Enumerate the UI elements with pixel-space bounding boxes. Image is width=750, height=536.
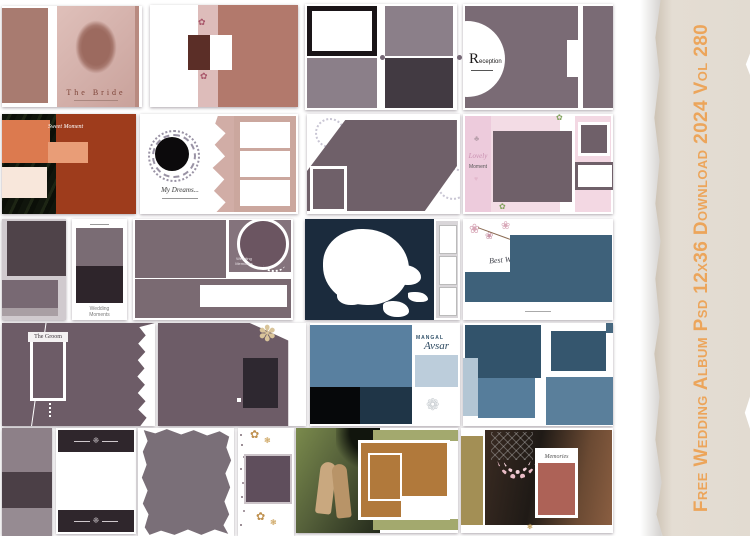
sidebar-title: Free Wedding Album Psd 12x36 Download 20… (691, 24, 713, 512)
photo-slot (240, 151, 290, 177)
photo-block (510, 235, 612, 302)
floral-wreath (68, 11, 124, 83)
template-thumbnail-flourish-card: ❈ ❈ (56, 428, 136, 534)
template-thumbnail-floral-frame: ✿ ✿ (150, 5, 298, 107)
tile-title: The Groom (34, 334, 62, 340)
photo-block (135, 279, 291, 318)
template-thumbnail-hexagon (307, 114, 460, 214)
framed-photo (578, 122, 610, 156)
subtitle-rule (162, 198, 198, 199)
grunge-band (210, 116, 236, 212)
photo-circle (155, 137, 189, 171)
pink-band: ♣ Lovely Moment ♥ (465, 116, 491, 212)
necklace (503, 440, 531, 474)
title-rest: eception (479, 59, 502, 65)
framed-overlay: Memories (535, 448, 578, 518)
white-box (401, 496, 447, 517)
template-thumbnail-grunge-block (138, 428, 234, 536)
floral-sprig-icon: ✿ (198, 17, 206, 28)
color-block (583, 6, 613, 108)
template-thumbnail-moss-photo (296, 428, 458, 533)
color-block (2, 167, 47, 198)
template-thumbnail-wedding-moments: Wedding Moments (72, 219, 127, 320)
tile-title: Wedding Memories (229, 256, 259, 266)
gold-sprig-icon: ✿ (256, 510, 265, 523)
gold-sprig-icon: ✿ (250, 428, 259, 441)
photo-block (135, 220, 226, 278)
photo-block (360, 387, 412, 424)
tile-title: Sweet Moment (48, 124, 83, 130)
top-rule (90, 224, 109, 225)
color-block (2, 428, 52, 472)
photo-box (188, 35, 210, 70)
speckle-edge (240, 434, 242, 436)
dotted-line (49, 403, 51, 405)
tile-title: Reception (469, 50, 502, 68)
color-block (2, 8, 48, 103)
template-thumbnail-gray-panels (2, 219, 66, 320)
photo-block (478, 378, 535, 418)
floral-sprig-icon: ✿ (200, 71, 208, 82)
flourish-icon: ❈ (93, 517, 100, 525)
title-box: The Groom (28, 332, 68, 342)
photo-area (312, 11, 372, 51)
side-strip (436, 221, 458, 318)
photo-slot (439, 256, 457, 285)
sidebar-title-text: Free Wedding Album Psd 12x36 Download 20… (691, 24, 713, 512)
grunge-edge (134, 323, 155, 426)
dot-separator (380, 55, 385, 60)
photo-slot (439, 225, 457, 254)
template-thumbnail-angled-mauve: ✽ (158, 323, 306, 426)
template-thumbnail-the-bride: The Bride (2, 6, 142, 107)
rule (74, 521, 90, 522)
leaf-icon: ✿ (499, 202, 506, 211)
title-box: Memories (538, 451, 575, 463)
leaf-icon: ✿ (556, 114, 563, 122)
circle-panel: Wedding Memories (229, 220, 291, 272)
photo-block (310, 387, 360, 424)
color-block (385, 6, 453, 56)
photo-slot (240, 180, 290, 206)
template-thumbnail-necklace-memories: Memories ❃ (461, 428, 613, 533)
photo-block (310, 325, 412, 387)
color-block (2, 472, 52, 508)
photo-block (551, 331, 606, 371)
ornament-band: ❈ (58, 430, 134, 452)
framed-photo (310, 166, 347, 212)
tile-title-line1: Lovely (465, 152, 491, 160)
template-thumbnail-blue-boxes (463, 323, 613, 426)
edge-strip (135, 6, 139, 107)
ornament-band: ❈ (58, 510, 134, 532)
subtitle-rule (471, 70, 493, 71)
template-thumbnail-wedding-memories: Wedding Memories (133, 219, 293, 320)
color-block (385, 58, 453, 108)
heart-icon: ♥ (474, 176, 478, 183)
color-block (307, 58, 377, 108)
dotted-arc (263, 258, 285, 272)
gold-sprig-icon: ❃ (270, 518, 277, 527)
rule (102, 521, 118, 522)
template-thumbnail-best-wishes: ❀ ❀ ❀ Best Wishes (463, 219, 613, 320)
template-thumbnail-bands (2, 428, 52, 536)
subtitle-rule (74, 100, 118, 101)
dot-separator (457, 55, 462, 60)
template-thumbnail-navy-splatter (305, 219, 460, 320)
photo-block (7, 221, 66, 276)
photo-block (76, 266, 123, 303)
photo-frame (368, 453, 402, 501)
color-block (415, 355, 458, 387)
paint-splatter (323, 229, 409, 305)
rule (74, 441, 90, 442)
photo-slot (439, 287, 457, 316)
gold-ornament-icon: ❃ (527, 523, 533, 531)
tile-title: My Dreams... (152, 186, 208, 194)
tile-title-line2: Moment (465, 164, 491, 170)
car-photo: Memories (485, 430, 612, 525)
tile-title-line2: Avsar (424, 340, 449, 352)
blossom-icon: ❀ (501, 219, 510, 232)
color-block (2, 120, 50, 163)
bordered-box (575, 162, 613, 190)
title-line2: Moments (89, 312, 110, 318)
blossom-icon: ❀ (469, 221, 480, 237)
lotus-icon: ❁ (426, 395, 439, 415)
flower-icon: ✽ (258, 323, 276, 347)
template-thumbnail-the-groom: The Groom (2, 323, 155, 426)
photo-block (243, 358, 278, 408)
tile-title: The Bride (57, 88, 135, 97)
template-thumbnail-mangal-avsar: Mangal Avsar ❁ (310, 323, 460, 426)
white-box (200, 285, 287, 307)
gold-sprig-icon: ❃ (264, 436, 271, 445)
square-dot (237, 398, 241, 402)
photo-frame (307, 6, 377, 56)
panel: The Bride (57, 6, 135, 107)
tile-title: Memories (545, 454, 569, 460)
rule (102, 441, 118, 442)
tile-title: Wedding Moments (72, 306, 127, 318)
photo-block (244, 454, 292, 504)
small-square (606, 323, 613, 333)
photo-block (76, 228, 123, 266)
template-thumbnail-reception: Reception (463, 4, 613, 110)
template-thumbnail-leaf-card: ✿ ❃ ✿ ❃ (238, 428, 294, 536)
white-box (210, 35, 232, 70)
photo-block (493, 131, 572, 202)
title-initial: R (469, 51, 479, 67)
wedding-album-collage: { "sidebar": { "title": "Free Wedding Al… (0, 0, 750, 536)
photo-slot (240, 122, 290, 148)
tree-icon: ♣ (474, 134, 479, 143)
color-strip (463, 358, 478, 416)
photo-block (546, 377, 613, 425)
title-line2: Memories (235, 261, 253, 266)
ochre-panel (358, 440, 450, 520)
template-thumbnail-lovely-moment: ♣ Lovely Moment ♥ ✿ ✿ (463, 114, 613, 214)
template-thumbnail-sweet-moment: Sweet Moment (2, 114, 136, 214)
flourish-icon: ❈ (93, 437, 100, 445)
grunge-photo-block (138, 428, 234, 536)
color-block (48, 142, 88, 163)
color-block (2, 508, 52, 536)
torn-paper-sidebar: Free Wedding Album Psd 12x36 Download 20… (646, 0, 750, 536)
photo-block (465, 272, 510, 302)
notch (567, 40, 579, 77)
template-collage-board: The Bride ✿ ✿ Reception (0, 0, 660, 536)
rose-panel (234, 116, 296, 212)
color-strip (2, 308, 58, 316)
angled-block (158, 323, 306, 426)
template-thumbnail-my-dreams: My Dreams... (140, 114, 298, 214)
olive-band (373, 519, 458, 530)
ornament-rule (525, 311, 551, 312)
framed-photo (30, 338, 66, 401)
tan-band (461, 436, 483, 525)
